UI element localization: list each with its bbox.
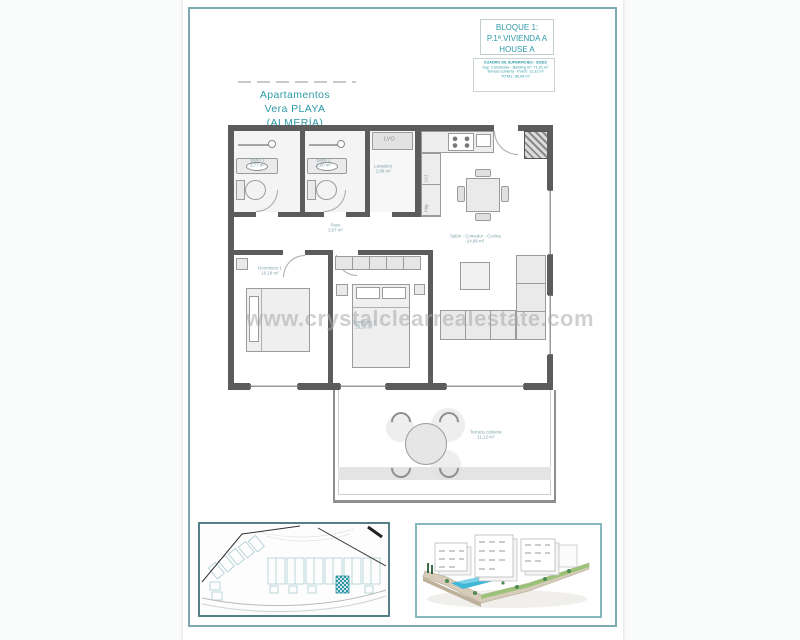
buildings <box>435 535 577 581</box>
room-label-bedroom2: Dormitorio 2 10,50 m² <box>352 320 376 329</box>
pillow <box>356 287 380 299</box>
appliance-label-washer: LVO <box>384 137 395 142</box>
wall-segment <box>228 125 494 131</box>
document-page: BLOQUE 1: P.1ª.VIVIENDA A HOUSE A CUADRO… <box>183 0 623 640</box>
dining-chair <box>501 186 509 202</box>
stove <box>448 133 474 151</box>
title-block-line3: HOUSE A <box>481 44 553 55</box>
window <box>340 384 386 389</box>
pillow <box>382 287 406 299</box>
dining-table <box>466 178 500 212</box>
toilet-tank <box>236 180 245 200</box>
toilet-bowl <box>316 180 337 200</box>
wall-segment <box>234 250 283 255</box>
nightstand <box>236 258 248 270</box>
title-block-line1: BLOQUE 1: <box>481 22 553 33</box>
appliance-label-dishwasher: LVJ <box>424 175 429 182</box>
kitchen-sink <box>476 134 491 147</box>
complex-3d-render <box>417 525 600 616</box>
wall-segment <box>328 250 333 384</box>
coffee-table <box>460 262 490 290</box>
wall-segment <box>365 131 370 212</box>
room-label-hall: Paso 3,97 m² <box>328 223 343 232</box>
window <box>548 190 553 255</box>
wall-segment <box>415 131 421 212</box>
wall-segment <box>547 131 553 190</box>
surface-table: CUADRO DE SUPERFICIES - SIZES Sup. Const… <box>473 58 555 92</box>
nightstand <box>336 284 348 296</box>
wall-segment <box>547 355 553 383</box>
wall-segment <box>228 383 250 390</box>
wardrobe <box>335 256 421 270</box>
wall-segment <box>524 383 553 390</box>
wall-segment <box>278 212 324 217</box>
room-label-living: Salón - Comedor - Cocina 24,89 m² <box>450 234 501 243</box>
wall-segment <box>358 250 428 255</box>
pillow <box>249 296 259 342</box>
room-label-bath2: Baño 2 3,60 m² <box>316 158 331 167</box>
towel-rail <box>309 144 339 146</box>
render-3d-box <box>415 523 602 618</box>
appliance-label-fridge: Frig <box>424 204 429 212</box>
room-label-bedroom1: Dormitorio 1 10,18 m² <box>258 266 282 275</box>
wall-segment <box>547 255 553 295</box>
wall-segment <box>428 250 433 384</box>
shower-head <box>337 140 345 148</box>
surface-row-total: TOTAL: 80,05 m² <box>474 74 555 78</box>
sofa <box>516 255 546 340</box>
fine-print-line <box>238 81 356 83</box>
door-arc <box>283 255 305 277</box>
boundary-lines <box>202 526 386 582</box>
project-title-line1: Apartamentos <box>220 88 370 102</box>
wall-segment <box>346 212 370 217</box>
room-label-bath1: Baño 1 3,77 m² <box>250 158 265 167</box>
contour-lines <box>258 529 354 541</box>
window <box>250 384 298 389</box>
sliding-door <box>446 384 524 389</box>
towel-rail <box>238 144 270 146</box>
terrace-table <box>405 423 447 465</box>
dining-chair <box>475 213 491 221</box>
site-plan-drawing <box>200 524 388 615</box>
wall-segment <box>298 383 340 390</box>
title-block-line2: P.1ª.VIVIENDA A <box>481 33 553 44</box>
window <box>548 295 553 355</box>
nightstand <box>414 284 425 295</box>
wall-segment <box>300 131 305 212</box>
dining-chair <box>475 169 491 177</box>
building-outlines <box>208 535 380 600</box>
sofa <box>440 310 516 340</box>
site-plan-box <box>198 522 390 617</box>
floor-plan: Baño 1 3,77 m² Baño 2 3,60 m² Lavadero 1… <box>228 120 558 510</box>
toilet-bowl <box>245 180 266 200</box>
room-label-laundry: Lavadero 1,98 m² <box>374 164 392 173</box>
screenshot-root: { "header": { "project_line1": "Apartame… <box>0 0 800 640</box>
shower-head <box>268 140 276 148</box>
room-label-terrace: Terraza cubierta 11,12 m² <box>470 430 502 439</box>
project-title-line2: Vera PLAYA <box>220 102 370 116</box>
title-block: BLOQUE 1: P.1ª.VIVIENDA A HOUSE A <box>480 19 554 55</box>
wall-segment <box>228 131 234 390</box>
wall-segment <box>392 212 421 217</box>
toilet-tank <box>307 180 316 200</box>
highlighted-unit <box>336 576 349 593</box>
dining-chair <box>457 186 465 202</box>
entry-door-arc <box>494 131 518 155</box>
wall-segment <box>234 212 256 217</box>
wall-segment <box>386 383 446 390</box>
